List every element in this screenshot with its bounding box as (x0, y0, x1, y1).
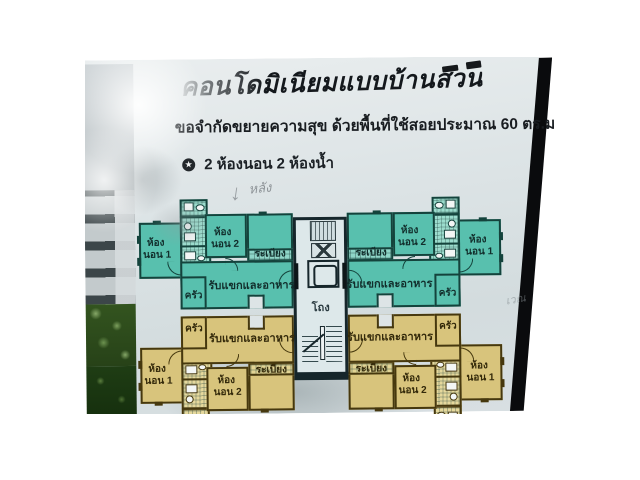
tl-bedroom2-label: นอน 2 (211, 240, 239, 250)
window-tick (137, 258, 141, 266)
bath-fixture (184, 251, 196, 260)
door-arc (402, 256, 415, 269)
tr-bedroom1-label: นอน 1 (465, 247, 493, 257)
window-tick (373, 210, 381, 214)
door-arc (403, 352, 416, 365)
core-bottom-wall (296, 372, 348, 379)
bath-fixture (445, 363, 457, 372)
shaft-x-boxes (311, 243, 336, 258)
building-photo-strip (83, 64, 137, 416)
star-bullet-icon: ★ (182, 158, 195, 171)
toilet-fixture (197, 255, 205, 261)
bath-fixture (186, 384, 198, 393)
core-door-left (294, 263, 298, 289)
shower-fixture (446, 200, 456, 209)
window-tick (259, 212, 267, 216)
page-subtitle: ขอจำกัดขยายความสุข ด้วยพื้นที่ใช้สอยประม… (175, 110, 560, 139)
bl-bedroom2-label: ห้อง (217, 376, 235, 386)
tl-kitchen-label: ครัว (185, 291, 203, 301)
br-bedroom1-label: ห้อง (470, 361, 488, 371)
hall-label: โถง (312, 303, 330, 313)
upper-stair-hatch (310, 221, 336, 241)
tl-bedroom1-label: ห้อง (147, 239, 165, 249)
br-bedroom2-label: นอน 2 (399, 386, 427, 396)
br-balcony-label: ระเบียง (356, 364, 387, 374)
tr-kitchen-label: ครัว (439, 289, 457, 299)
tr-bedroom2-label: นอน 2 (398, 238, 426, 248)
building-sky (83, 64, 134, 191)
window-tick (153, 221, 161, 225)
br-bedroom2-label: ห้อง (402, 374, 420, 384)
tl-living-label: รับแขกและอาหาร (208, 280, 294, 291)
photo-tilt-wrapper: คอนโดมิเนียมแบบบ้านสวน ขอจำกัดขยายความสุ… (0, 0, 640, 480)
bath-fixture (445, 382, 457, 391)
elevator (307, 260, 339, 288)
entry-notch (248, 295, 265, 309)
tl-balcony-label: ระเบียง (254, 249, 285, 259)
building-trees (86, 304, 137, 367)
toilet-fixture (435, 202, 444, 209)
window-tick (261, 409, 269, 413)
window-tick (481, 398, 489, 402)
tr-living-label: รับแขกและอาหาร (346, 279, 432, 290)
br-living-label: รับแขกและอาหาร (347, 332, 433, 343)
bl-bedroom1-label: ห้อง (148, 365, 166, 375)
toilet-fixture (435, 253, 443, 259)
bl-balcony-label: ระเบียง (256, 365, 287, 375)
tl-bedroom2-label: ห้อง (214, 228, 232, 238)
tl-bedroom1-label: นอน 1 (143, 251, 171, 261)
bath-fixture (185, 365, 197, 374)
central-core (293, 217, 349, 381)
bath-fixture (444, 230, 456, 239)
toilet-fixture (437, 412, 446, 419)
window-tick (500, 357, 504, 365)
toilet-fixture (198, 364, 206, 370)
sink-fixture (450, 393, 458, 401)
window-tick (499, 254, 503, 262)
bl-kitchen-label: ครัว (185, 324, 203, 334)
window-tick (138, 361, 142, 369)
entry-notch (377, 293, 394, 307)
building-facade-windows (84, 190, 135, 305)
bathroom-upper (182, 408, 210, 426)
tr-bedroom2-label: ห้อง (401, 226, 419, 236)
brochure-photo: คอนโดมิเนียมแบบบ้านสวน ขอจำกัดขยายความสุ… (0, 0, 640, 480)
shower-fixture (184, 202, 194, 211)
window-tick (375, 407, 383, 411)
window-tick (499, 232, 503, 240)
photo-area: คอนโดมิเนียมแบบบ้านสวน ขอจำกัดขยายความสุ… (0, 0, 640, 480)
door-arc (225, 258, 238, 271)
shower-fixture (448, 412, 458, 421)
handwritten-note-top: หลัง (247, 177, 272, 200)
toilet-fixture (198, 414, 207, 421)
feature-text: 2 ห้องนอน 2 ห้องน้ำ (204, 151, 334, 176)
sink-fixture (186, 395, 194, 403)
closet-area (248, 373, 294, 410)
tr-balcony-label: ระเบียง (355, 248, 386, 258)
door-arc (226, 354, 239, 367)
entry-notch (377, 314, 394, 328)
elevator-cab (313, 265, 337, 287)
tr-bedroom1-label: ห้อง (469, 235, 487, 245)
stair-treads-right (326, 324, 342, 362)
bath-fixture (184, 232, 196, 241)
shower-fixture (186, 414, 196, 423)
handwritten-note-right: เวณ (504, 288, 527, 309)
closet-area (348, 372, 394, 409)
window-tick (479, 217, 487, 221)
bath-fixture (444, 249, 456, 258)
building-grass (86, 366, 137, 416)
window-tick (500, 379, 504, 387)
toilet-fixture (436, 362, 444, 368)
window-tick (138, 383, 142, 391)
closet-area (347, 212, 393, 249)
sink-fixture (184, 222, 192, 230)
window-tick (155, 402, 163, 406)
feature-line: ★ 2 ห้องนอน 2 ห้องน้ำ (182, 151, 334, 177)
bathroom-upper (434, 406, 462, 424)
window-tick (137, 236, 141, 244)
stair-rail (320, 326, 325, 360)
sink-fixture (448, 220, 456, 228)
bl-bedroom1-label: นอน 1 (144, 377, 172, 387)
br-kitchen-label: ครัว (439, 322, 457, 332)
bl-bedroom2-label: นอน 2 (214, 388, 242, 398)
entry-notch (248, 316, 265, 330)
toilet-fixture (196, 204, 205, 211)
br-bedroom1-label: นอน 1 (466, 373, 494, 383)
bl-living-label: รับแขกและอาหาร (209, 333, 295, 344)
closet-area (247, 213, 293, 250)
